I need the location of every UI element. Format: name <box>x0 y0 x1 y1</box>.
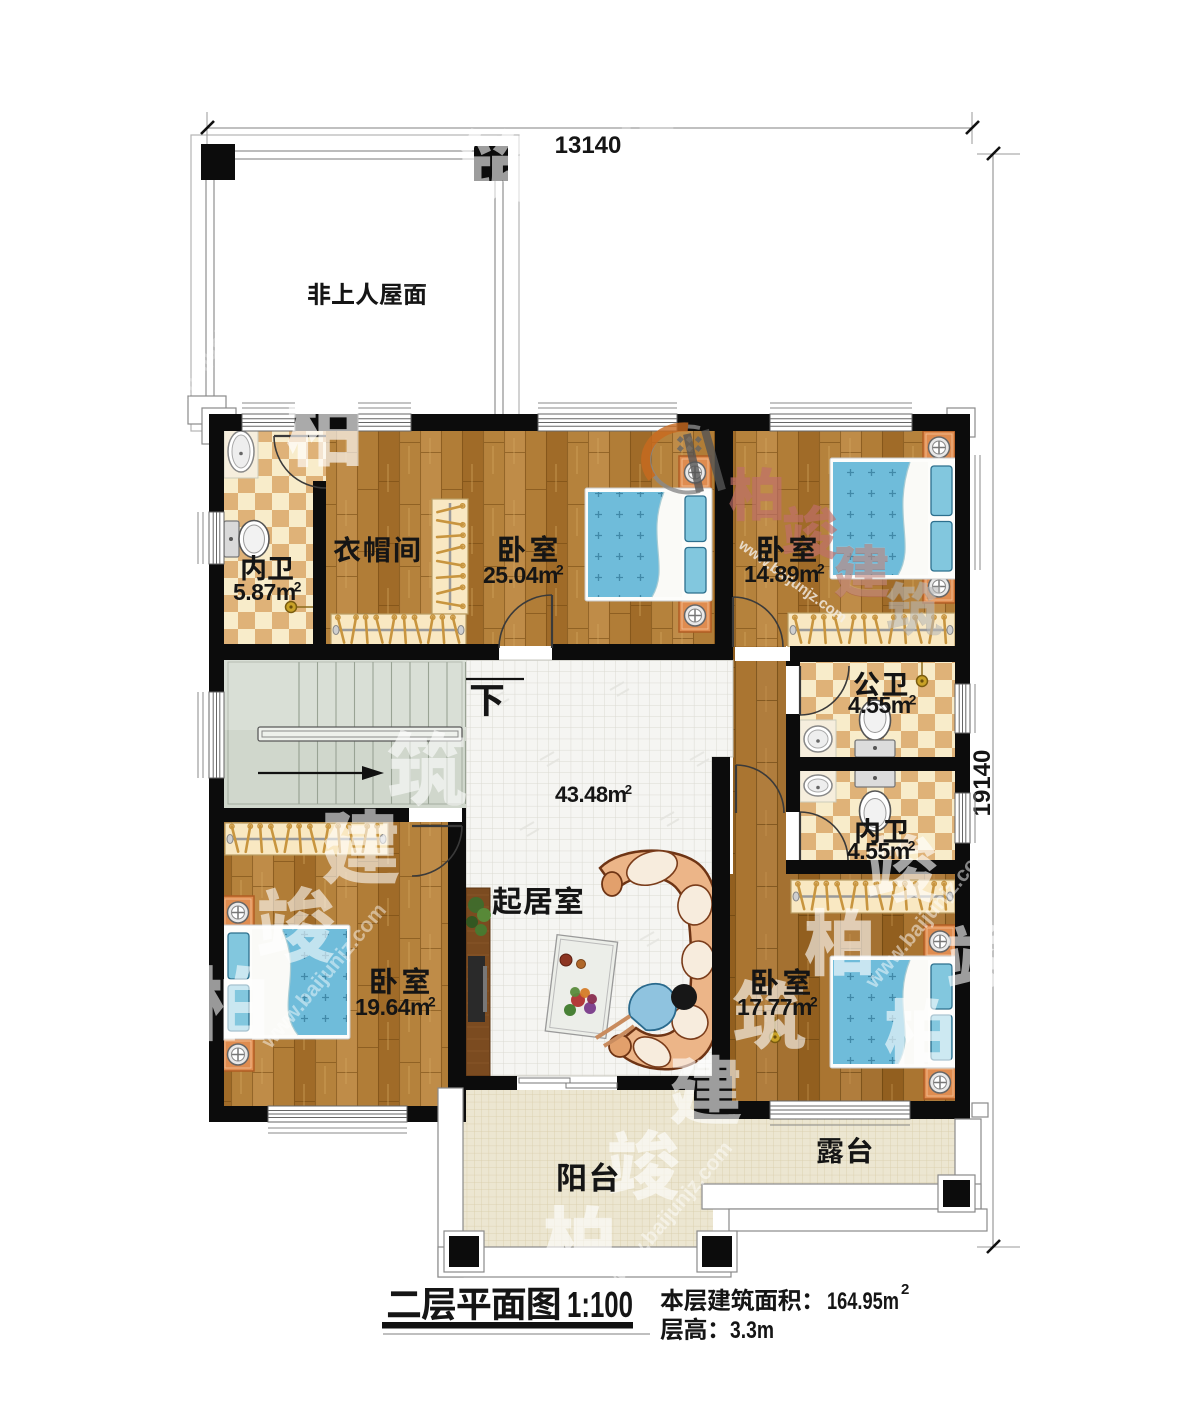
svg-text:2: 2 <box>625 782 632 797</box>
svg-text:19140: 19140 <box>969 750 996 817</box>
svg-text:2: 2 <box>810 995 818 1010</box>
svg-text:14.89m: 14.89m <box>744 561 819 587</box>
svg-text:19.64m: 19.64m <box>355 994 430 1020</box>
svg-text:13140: 13140 <box>555 132 622 159</box>
svg-text:2: 2 <box>901 1281 909 1298</box>
svg-text:2: 2 <box>556 563 564 578</box>
svg-text:5.87m: 5.87m <box>233 579 296 605</box>
svg-text:2: 2 <box>817 562 825 577</box>
svg-text:25.04m: 25.04m <box>483 562 558 588</box>
svg-text:4.55m: 4.55m <box>847 838 910 864</box>
svg-text:2: 2 <box>908 839 916 854</box>
svg-text:3.3m: 3.3m <box>730 1317 774 1344</box>
svg-text:2: 2 <box>294 580 302 595</box>
svg-text:164.95m: 164.95m <box>827 1288 899 1315</box>
svg-text:1:100: 1:100 <box>567 1284 633 1325</box>
svg-text:4.55m: 4.55m <box>848 692 911 718</box>
svg-text:2: 2 <box>428 995 436 1010</box>
svg-text:17.77m: 17.77m <box>737 994 812 1020</box>
svg-text:2: 2 <box>909 693 917 708</box>
svg-text:43.48m: 43.48m <box>555 782 627 807</box>
